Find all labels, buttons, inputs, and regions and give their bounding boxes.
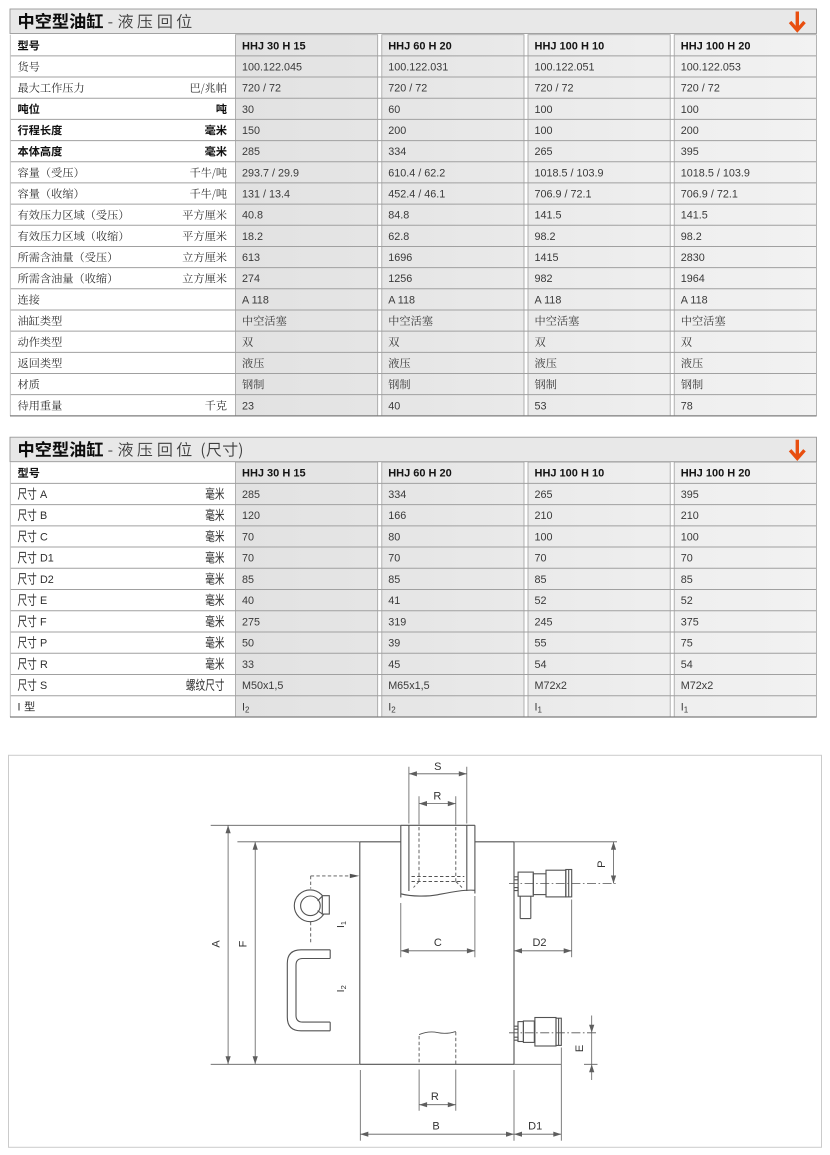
svg-text:78: 78 bbox=[681, 400, 693, 412]
svg-text:E: E bbox=[574, 1045, 586, 1052]
svg-text:52: 52 bbox=[681, 595, 693, 607]
svg-text:70: 70 bbox=[681, 553, 693, 565]
svg-text:62.8: 62.8 bbox=[388, 231, 409, 243]
svg-text:A 118: A 118 bbox=[388, 294, 415, 306]
svg-text:100.122.045: 100.122.045 bbox=[242, 62, 302, 74]
svg-text:HHJ 100 H 10: HHJ 100 H 10 bbox=[535, 40, 605, 52]
svg-text:274: 274 bbox=[242, 273, 260, 285]
svg-text:18.2: 18.2 bbox=[242, 231, 263, 243]
svg-text:39: 39 bbox=[388, 638, 400, 650]
svg-text:HHJ 100 H 20: HHJ 100 H 20 bbox=[681, 40, 751, 52]
svg-text:265: 265 bbox=[535, 489, 553, 501]
svg-text:720 / 72: 720 / 72 bbox=[388, 83, 427, 95]
svg-text:1415: 1415 bbox=[535, 252, 559, 264]
svg-text:334: 334 bbox=[388, 489, 406, 501]
svg-text:200: 200 bbox=[681, 125, 699, 137]
svg-text:334: 334 bbox=[388, 146, 406, 158]
svg-text:610.4 / 62.2: 610.4 / 62.2 bbox=[388, 167, 445, 179]
svg-text:70: 70 bbox=[388, 553, 400, 565]
svg-text:98.2: 98.2 bbox=[681, 231, 702, 243]
svg-text:70: 70 bbox=[535, 553, 547, 565]
svg-text:23: 23 bbox=[242, 400, 254, 412]
svg-text:395: 395 bbox=[681, 146, 699, 158]
svg-text:50: 50 bbox=[242, 638, 254, 650]
svg-text:293.7 / 29.9: 293.7 / 29.9 bbox=[242, 167, 299, 179]
svg-text:100.122.053: 100.122.053 bbox=[681, 62, 741, 74]
svg-text:HHJ 30 H 15: HHJ 30 H 15 bbox=[242, 40, 306, 52]
svg-text:100: 100 bbox=[535, 531, 553, 543]
svg-text:131 / 13.4: 131 / 13.4 bbox=[242, 189, 290, 201]
svg-text:100: 100 bbox=[535, 104, 553, 116]
svg-text:100.122.031: 100.122.031 bbox=[388, 62, 448, 74]
svg-text:F: F bbox=[237, 940, 249, 947]
svg-text:70: 70 bbox=[242, 531, 254, 543]
svg-text:200: 200 bbox=[388, 125, 406, 137]
svg-text:R: R bbox=[431, 1091, 439, 1103]
svg-text:265: 265 bbox=[535, 146, 553, 158]
svg-text:100: 100 bbox=[535, 125, 553, 137]
svg-text:98.2: 98.2 bbox=[535, 231, 556, 243]
svg-text:1964: 1964 bbox=[681, 273, 705, 285]
svg-text:HHJ 30 H 15: HHJ 30 H 15 bbox=[242, 468, 306, 480]
svg-text:C: C bbox=[40, 531, 48, 543]
svg-text:84.8: 84.8 bbox=[388, 210, 409, 222]
svg-text:33: 33 bbox=[242, 659, 254, 671]
svg-text:720 / 72: 720 / 72 bbox=[535, 83, 574, 95]
svg-text:A: A bbox=[211, 940, 223, 948]
svg-text:40: 40 bbox=[388, 400, 400, 412]
svg-text:85: 85 bbox=[388, 574, 400, 586]
svg-text:40: 40 bbox=[242, 595, 254, 607]
svg-text:166: 166 bbox=[388, 510, 406, 522]
svg-text:141.5: 141.5 bbox=[681, 210, 708, 222]
svg-text:1696: 1696 bbox=[388, 252, 412, 264]
svg-text:A 118: A 118 bbox=[681, 294, 708, 306]
svg-text:319: 319 bbox=[388, 616, 406, 628]
svg-text:54: 54 bbox=[681, 659, 693, 671]
svg-text:S: S bbox=[434, 761, 441, 773]
svg-text:M50x1,5: M50x1,5 bbox=[242, 680, 283, 692]
svg-text:210: 210 bbox=[681, 510, 699, 522]
svg-text:1256: 1256 bbox=[388, 273, 412, 285]
svg-text:2830: 2830 bbox=[681, 252, 705, 264]
svg-text:R: R bbox=[40, 659, 48, 671]
svg-text:B: B bbox=[40, 510, 47, 522]
svg-text:M72x2: M72x2 bbox=[681, 680, 713, 692]
svg-text:395: 395 bbox=[681, 489, 699, 501]
svg-text:120: 120 bbox=[242, 510, 260, 522]
svg-text:275: 275 bbox=[242, 616, 260, 628]
svg-text:M72x2: M72x2 bbox=[535, 680, 567, 692]
svg-text:100: 100 bbox=[681, 531, 699, 543]
svg-text:52: 52 bbox=[535, 595, 547, 607]
svg-text:C: C bbox=[434, 937, 442, 949]
svg-text:55: 55 bbox=[535, 638, 547, 650]
svg-text:452.4 / 46.1: 452.4 / 46.1 bbox=[388, 189, 445, 201]
svg-text:HHJ 100 H 10: HHJ 100 H 10 bbox=[535, 468, 605, 480]
svg-text:75: 75 bbox=[681, 638, 693, 650]
svg-text:720 / 72: 720 / 72 bbox=[242, 83, 281, 95]
svg-text:D2: D2 bbox=[532, 937, 546, 949]
svg-text:S: S bbox=[40, 680, 47, 692]
svg-text:53: 53 bbox=[535, 400, 547, 412]
svg-text:285: 285 bbox=[242, 146, 260, 158]
svg-text:D2: D2 bbox=[40, 574, 54, 586]
svg-text:706.9 / 72.1: 706.9 / 72.1 bbox=[681, 189, 738, 201]
svg-text:40.8: 40.8 bbox=[242, 210, 263, 222]
svg-text:100.122.051: 100.122.051 bbox=[535, 62, 595, 74]
svg-text:R: R bbox=[433, 791, 441, 803]
svg-text:HHJ 60 H 20: HHJ 60 H 20 bbox=[388, 40, 452, 52]
svg-text:HHJ 100 H 20: HHJ 100 H 20 bbox=[681, 468, 751, 480]
svg-text:706.9 / 72.1: 706.9 / 72.1 bbox=[535, 189, 592, 201]
svg-text:375: 375 bbox=[681, 616, 699, 628]
svg-text:720 / 72: 720 / 72 bbox=[681, 83, 720, 95]
svg-text:285: 285 bbox=[242, 489, 260, 501]
svg-text:210: 210 bbox=[535, 510, 553, 522]
svg-text:100: 100 bbox=[681, 104, 699, 116]
svg-text:D1: D1 bbox=[528, 1121, 542, 1133]
svg-text:A 118: A 118 bbox=[242, 294, 269, 306]
svg-text:70: 70 bbox=[242, 553, 254, 565]
svg-text:41: 41 bbox=[388, 595, 400, 607]
svg-text:245: 245 bbox=[535, 616, 553, 628]
svg-text:54: 54 bbox=[535, 659, 547, 671]
svg-text:HHJ 60 H 20: HHJ 60 H 20 bbox=[388, 468, 452, 480]
svg-text:1018.5 / 103.9: 1018.5 / 103.9 bbox=[535, 167, 604, 179]
svg-text:85: 85 bbox=[681, 574, 693, 586]
svg-text:982: 982 bbox=[535, 273, 553, 285]
svg-text:E: E bbox=[40, 595, 47, 607]
svg-text:1018.5 / 103.9: 1018.5 / 103.9 bbox=[681, 167, 750, 179]
svg-text:P: P bbox=[40, 638, 47, 650]
svg-text:M65x1,5: M65x1,5 bbox=[388, 680, 429, 692]
svg-text:B: B bbox=[432, 1121, 439, 1133]
svg-text:I: I bbox=[18, 701, 21, 713]
svg-text:F: F bbox=[40, 616, 47, 628]
svg-text:P: P bbox=[596, 861, 608, 868]
svg-text:80: 80 bbox=[388, 531, 400, 543]
svg-text:141.5: 141.5 bbox=[535, 210, 562, 222]
svg-text:45: 45 bbox=[388, 659, 400, 671]
svg-text:A: A bbox=[40, 489, 48, 501]
svg-text:85: 85 bbox=[535, 574, 547, 586]
svg-text:150: 150 bbox=[242, 125, 260, 137]
svg-text:30: 30 bbox=[242, 104, 254, 116]
svg-text:60: 60 bbox=[388, 104, 400, 116]
svg-text:D1: D1 bbox=[40, 553, 54, 565]
svg-text:A 118: A 118 bbox=[535, 294, 562, 306]
svg-text:85: 85 bbox=[242, 574, 254, 586]
svg-text:613: 613 bbox=[242, 252, 260, 264]
